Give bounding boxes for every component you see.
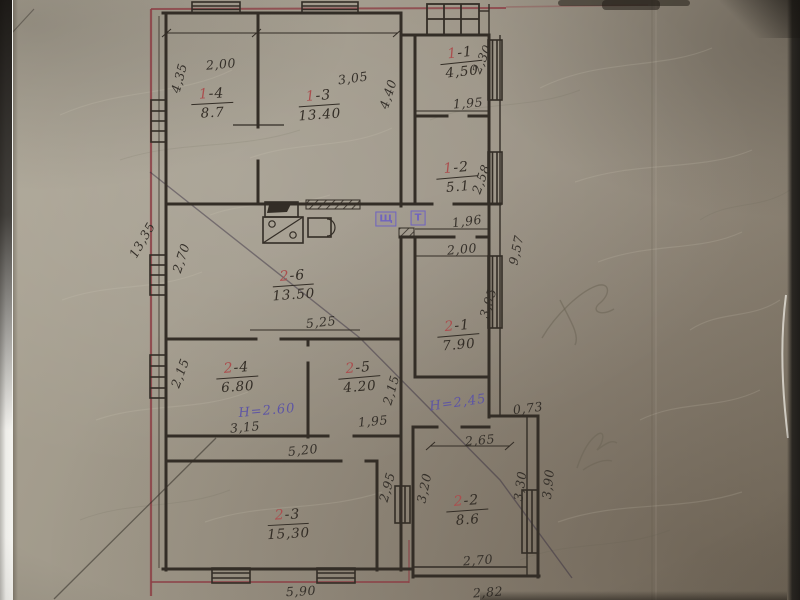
dimension-label: 4,40 <box>376 77 400 110</box>
room-label-1-4: 1-48.7 <box>190 82 233 122</box>
dimension-label: 13,35 <box>126 219 158 260</box>
room-area: 15,30 <box>267 524 310 543</box>
room-area: 4.20 <box>338 376 381 397</box>
room-number: 2-4 <box>215 359 258 380</box>
room-number-suffix: -3 <box>284 506 300 523</box>
room-label-2-5: 2-54.20 <box>337 355 382 396</box>
room-number-suffix: -2 <box>453 159 470 176</box>
dimension-label: 9,57 <box>506 234 527 267</box>
dimension-label: 3,20 <box>414 472 435 505</box>
room-label-2-2: 2-28.6 <box>445 489 489 530</box>
dimension-label: 2,95 <box>376 470 398 503</box>
room-number-suffix: -2 <box>463 492 480 509</box>
ink-stamp-mark: Т <box>411 211 426 226</box>
dimension-label: 3,30 <box>510 470 529 502</box>
dimension-label: 1,96 <box>451 212 483 231</box>
room-number: 2-2 <box>445 492 488 513</box>
ceiling-height-note: Н=2,45 <box>429 392 488 415</box>
room-number-suffix: -6 <box>289 267 306 284</box>
room-area: 13.50 <box>272 285 316 305</box>
room-number-suffix: -1 <box>454 317 471 334</box>
room-area: 7.90 <box>437 334 480 355</box>
dimension-label: 3,95 <box>476 286 499 319</box>
room-number: 2-5 <box>337 358 380 380</box>
dimension-label: 1,95 <box>357 412 388 430</box>
dimension-label: 4,35 <box>168 61 190 94</box>
room-number: 2-6 <box>271 267 314 288</box>
room-area: 8.6 <box>446 510 489 530</box>
room-label-1-3: 1-313.40 <box>296 84 341 125</box>
dimension-label: 3,05 <box>337 68 369 87</box>
dimension-label: 2,65 <box>464 431 495 449</box>
room-number-suffix: -5 <box>355 359 372 376</box>
room-number-suffix: -3 <box>315 87 332 104</box>
dimension-label: 2,82 <box>472 583 503 600</box>
room-number: 2-3 <box>266 506 308 526</box>
room-label-2-4: 2-46.80 <box>215 356 259 397</box>
dimension-label: 0,73 <box>512 399 544 418</box>
dimension-label: 2,15 <box>380 373 403 406</box>
dimension-label: 3,15 <box>229 418 260 436</box>
dimension-label: 5,90 <box>286 583 317 600</box>
room-area: 8.7 <box>191 103 233 122</box>
dimension-label: 2,00 <box>205 55 236 73</box>
labels-layer: 1-48.71-313.401-14,501-25.12-613.502-17.… <box>0 0 800 600</box>
ceiling-height-note: Н=2.60 <box>238 401 296 421</box>
room-label-2-3: 2-315,30 <box>266 503 311 543</box>
ink-stamp-mark: Щ <box>375 212 396 227</box>
room-number-suffix: -4 <box>233 359 250 376</box>
dimension-label: 5,25 <box>305 313 337 331</box>
room-number-suffix: -1 <box>456 44 473 62</box>
dimension-label: 1,95 <box>452 94 483 111</box>
room-label-2-1: 2-17.90 <box>436 313 481 354</box>
floorplan-photo: 1-48.71-313.401-14,501-25.12-613.502-17.… <box>0 0 800 600</box>
room-number: 2-1 <box>436 316 479 338</box>
room-number-suffix: -4 <box>208 85 224 102</box>
room-area: 6.80 <box>216 377 259 397</box>
dimension-label: 2,70 <box>462 551 493 568</box>
dimension-label: 2,15 <box>168 356 192 390</box>
dimension-label: 5,20 <box>287 441 319 459</box>
room-number: 1-4 <box>190 85 232 105</box>
room-label-2-6: 2-613.50 <box>270 264 315 305</box>
room-number: 1-2 <box>435 158 478 180</box>
room-number: 1-3 <box>297 87 340 108</box>
dimension-label: 2,70 <box>169 241 193 274</box>
dimension-label: 3,90 <box>539 468 557 500</box>
dimension-label: 2,00 <box>446 240 477 258</box>
room-area: 13.40 <box>298 105 342 125</box>
